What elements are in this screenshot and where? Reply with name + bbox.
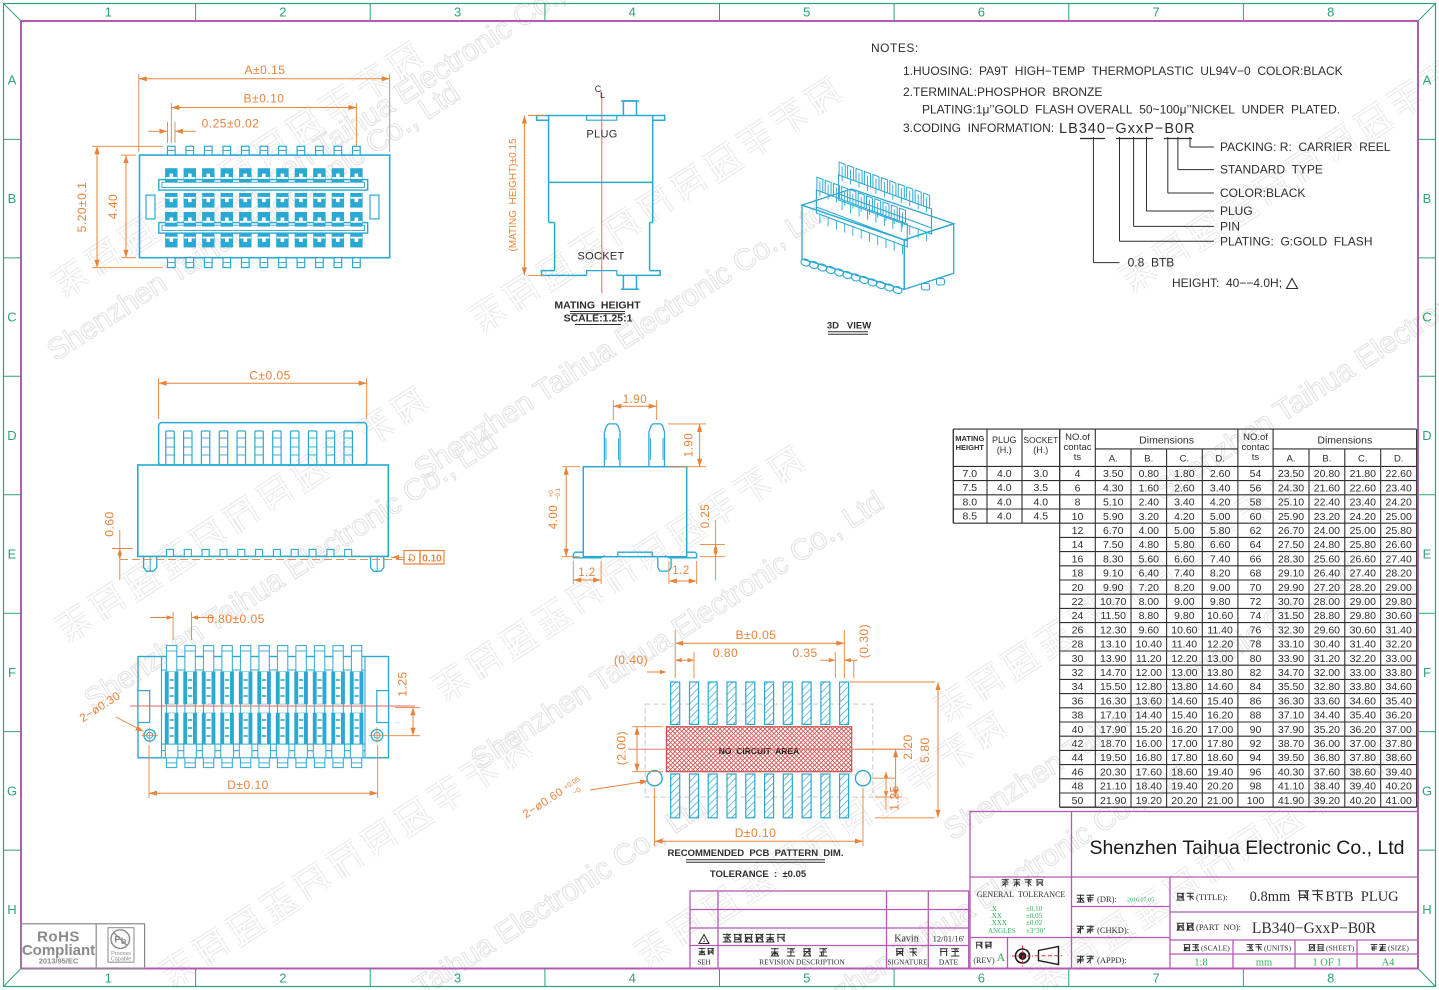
svg-text:26: 26 — [1072, 624, 1084, 636]
svg-text:11.40: 11.40 — [1207, 624, 1233, 636]
svg-text:26.60: 26.60 — [1350, 553, 1376, 565]
svg-text:3.CODING INFORMATION:: 3.CODING INFORMATION: — [903, 121, 1054, 135]
svg-text:NOTES:: NOTES: — [871, 41, 919, 55]
svg-text:4.0: 4.0 — [997, 511, 1012, 523]
svg-text:(DR):: (DR): — [1097, 894, 1117, 904]
svg-text:84: 84 — [1250, 681, 1262, 693]
svg-text:D±0.10: D±0.10 — [227, 778, 269, 792]
svg-text:17.60: 17.60 — [1136, 766, 1162, 778]
svg-text:7.40: 7.40 — [1174, 568, 1195, 580]
svg-text:9.80: 9.80 — [1174, 610, 1195, 622]
svg-text:24.20: 24.20 — [1350, 511, 1376, 523]
svg-text:2.TERMINAL:PHOSPHOR BRONZE: 2.TERMINAL:PHOSPHOR BRONZE — [903, 85, 1102, 99]
svg-text:9.90: 9.90 — [1103, 582, 1124, 594]
svg-text:Shenzhen Taihua Electronic Co.: Shenzhen Taihua Electronic Co., Ltd — [1089, 837, 1404, 859]
svg-text:14.60: 14.60 — [1171, 695, 1197, 707]
svg-text:5.20±0.1: 5.20±0.1 — [75, 182, 89, 233]
svg-text:21.90: 21.90 — [1100, 795, 1126, 807]
svg-text:1: 1 — [702, 938, 705, 944]
svg-text:2013/95/EC: 2013/95/EC — [39, 957, 79, 966]
svg-text:SCALE:1.25:1: SCALE:1.25:1 — [564, 313, 633, 325]
svg-text:25.10: 25.10 — [1278, 497, 1304, 509]
svg-text:4: 4 — [629, 971, 636, 986]
svg-text:80: 80 — [1250, 653, 1262, 665]
svg-text:(CHKD):: (CHKD): — [1097, 925, 1129, 935]
svg-text:8.80: 8.80 — [1139, 610, 1160, 622]
svg-text:D: D — [408, 554, 415, 565]
svg-text:6.60: 6.60 — [1210, 539, 1231, 551]
svg-text:8: 8 — [1327, 5, 1334, 20]
svg-text:9.60: 9.60 — [1139, 624, 1160, 636]
svg-text:F: F — [8, 665, 16, 680]
svg-text:12.20: 12.20 — [1207, 639, 1233, 651]
svg-text:10: 10 — [1072, 511, 1084, 523]
svg-text:3.20: 3.20 — [1139, 511, 1160, 523]
svg-text:32.00: 32.00 — [1314, 667, 1340, 679]
svg-text:1.2: 1.2 — [672, 565, 690, 577]
svg-text:58: 58 — [1250, 497, 1262, 509]
svg-text:1.90: 1.90 — [623, 394, 647, 406]
svg-text:20: 20 — [1072, 582, 1084, 594]
svg-text:27.50: 27.50 — [1278, 539, 1304, 551]
svg-text:8.30: 8.30 — [1103, 553, 1124, 565]
svg-text:37.10: 37.10 — [1278, 710, 1304, 722]
svg-text:1.25: 1.25 — [396, 671, 410, 696]
svg-text:C.: C. — [1358, 454, 1368, 465]
svg-text:32.20: 32.20 — [1350, 653, 1376, 665]
svg-text:RECOMMENDED PCB PATTERN DIM: RECOMMENDED PCB PATTERN DIM. — [668, 848, 844, 859]
svg-text:4.30: 4.30 — [1103, 482, 1124, 494]
svg-text:18: 18 — [1072, 568, 1084, 580]
svg-text:11.20: 11.20 — [1136, 653, 1162, 665]
svg-text:5.60: 5.60 — [1139, 553, 1160, 565]
svg-text:(PART NO):: (PART NO): — [1196, 922, 1241, 932]
svg-text:(SHEET): (SHEET) — [1326, 944, 1355, 953]
svg-text:6.40: 6.40 — [1139, 568, 1160, 580]
svg-text:SIGNATURE: SIGNATURE — [888, 959, 929, 967]
svg-text:16: 16 — [1072, 553, 1084, 565]
svg-text:15.20: 15.20 — [1136, 724, 1162, 736]
svg-text:24.80: 24.80 — [1314, 539, 1340, 551]
svg-text:16.30: 16.30 — [1100, 695, 1126, 707]
svg-text:4: 4 — [629, 5, 636, 20]
svg-text:60: 60 — [1250, 511, 1262, 523]
svg-text:34.60: 34.60 — [1386, 681, 1412, 693]
svg-text:ANGLES: ANGLES — [988, 927, 1016, 935]
svg-text:3.50: 3.50 — [1103, 468, 1124, 480]
svg-text:ts: ts — [1252, 452, 1260, 463]
svg-text:4.0: 4.0 — [997, 482, 1012, 494]
svg-text:27.40: 27.40 — [1386, 553, 1412, 565]
svg-text:REVISION DESCRIPTION: REVISION DESCRIPTION — [759, 958, 845, 967]
svg-text:(APPD):: (APPD): — [1097, 955, 1127, 965]
svg-text:41.00: 41.00 — [1386, 795, 1412, 807]
svg-text:4.80: 4.80 — [1139, 539, 1160, 551]
svg-text:22: 22 — [1072, 596, 1084, 608]
svg-text:13.80: 13.80 — [1171, 681, 1197, 693]
svg-text:34: 34 — [1072, 681, 1084, 693]
svg-text:31.50: 31.50 — [1278, 610, 1304, 622]
svg-text:74: 74 — [1250, 610, 1262, 622]
svg-text:34.70: 34.70 — [1278, 667, 1304, 679]
svg-text:29.00: 29.00 — [1386, 582, 1412, 594]
svg-text:16.80: 16.80 — [1136, 752, 1162, 764]
svg-text:21.00: 21.00 — [1207, 795, 1233, 807]
svg-text:6.70: 6.70 — [1103, 525, 1124, 537]
svg-text:39.40: 39.40 — [1386, 766, 1412, 778]
svg-text:1.80: 1.80 — [1174, 468, 1195, 480]
svg-text:37.00: 37.00 — [1350, 738, 1376, 750]
svg-text:A.: A. — [1287, 454, 1296, 465]
svg-text:33.80: 33.80 — [1350, 681, 1376, 693]
svg-text:6.60: 6.60 — [1174, 553, 1195, 565]
svg-text:0.8 BTB: 0.8 BTB — [1128, 256, 1175, 270]
svg-text:30.70: 30.70 — [1278, 596, 1304, 608]
svg-text:BTB PLUG: BTB PLUG — [1325, 889, 1399, 905]
svg-text:4.20: 4.20 — [1174, 511, 1195, 523]
svg-text:H: H — [7, 902, 16, 917]
svg-text:36.80: 36.80 — [1314, 752, 1340, 764]
svg-text:12.80: 12.80 — [1136, 681, 1162, 693]
svg-text:5: 5 — [803, 971, 810, 986]
svg-text:28.80: 28.80 — [1314, 610, 1340, 622]
svg-text:68: 68 — [1250, 568, 1262, 580]
svg-text:0.25±0.02: 0.25±0.02 — [202, 117, 260, 131]
svg-text:25.00: 25.00 — [1386, 511, 1412, 523]
svg-text:32.80: 32.80 — [1314, 681, 1340, 693]
svg-text:29.60: 29.60 — [1314, 624, 1340, 636]
svg-text:Kavin: Kavin — [894, 934, 918, 945]
svg-text:PLUG: PLUG — [992, 435, 1017, 445]
svg-text:5.80: 5.80 — [918, 737, 932, 762]
svg-text:Dimensions: Dimensions — [1317, 435, 1372, 447]
svg-text:D.: D. — [1215, 454, 1225, 465]
svg-text:A: A — [997, 950, 1006, 964]
svg-text:4.0: 4.0 — [1033, 496, 1048, 508]
svg-text:STANDARD TYPE: STANDARD TYPE — [1220, 163, 1323, 177]
svg-text:82: 82 — [1250, 667, 1262, 679]
svg-text:PLATING:1μ’’GOLD FLASH OVERAL: PLATING:1μ’’GOLD FLASH OVERALL 50~100μ’’… — [922, 103, 1340, 117]
svg-text:10.60: 10.60 — [1207, 610, 1233, 622]
svg-text:(0.30): (0.30) — [857, 624, 871, 658]
svg-text:30.60: 30.60 — [1350, 624, 1376, 636]
svg-text:24.20: 24.20 — [1386, 497, 1412, 509]
svg-text:30.40: 30.40 — [1314, 639, 1340, 651]
svg-text:25.00: 25.00 — [1350, 525, 1376, 537]
svg-text:41.90: 41.90 — [1278, 795, 1304, 807]
svg-text:(0.40): (0.40) — [614, 653, 648, 667]
svg-text:96: 96 — [1250, 766, 1262, 778]
svg-text:D.: D. — [1394, 454, 1404, 465]
svg-text:4.00: 4.00 — [1139, 525, 1160, 537]
svg-text:LB340−GxxP−B0R: LB340−GxxP−B0R — [1059, 121, 1196, 137]
svg-text:7.50: 7.50 — [1103, 539, 1124, 551]
svg-text:25.90: 25.90 — [1278, 511, 1304, 523]
svg-text:5.80: 5.80 — [1174, 539, 1195, 551]
svg-text:2: 2 — [279, 5, 286, 20]
svg-text:34.40: 34.40 — [1314, 710, 1340, 722]
svg-text:17.00: 17.00 — [1207, 724, 1233, 736]
svg-text:28.20: 28.20 — [1350, 582, 1376, 594]
svg-text:35.20: 35.20 — [1314, 724, 1340, 736]
svg-text:1.25: 1.25 — [888, 785, 902, 810]
svg-text:16.20: 16.20 — [1171, 724, 1197, 736]
svg-text:20.20: 20.20 — [1207, 781, 1233, 793]
svg-text:D: D — [7, 428, 16, 443]
svg-text:13.00: 13.00 — [1207, 653, 1233, 665]
svg-text:Capable: Capable — [111, 957, 132, 963]
svg-text:E: E — [1423, 547, 1432, 562]
svg-text:B±0.10: B±0.10 — [244, 92, 285, 106]
svg-text:B: B — [1423, 191, 1432, 206]
svg-text:−0.1: −0.1 — [555, 487, 562, 500]
svg-text:29.10: 29.10 — [1278, 568, 1304, 580]
svg-text:94: 94 — [1250, 752, 1262, 764]
svg-text:22.40: 22.40 — [1314, 497, 1340, 509]
svg-text:0.25: 0.25 — [700, 504, 712, 528]
svg-text:16.00: 16.00 — [1136, 738, 1162, 750]
svg-text:34.60: 34.60 — [1350, 695, 1376, 707]
svg-text:17.80: 17.80 — [1171, 752, 1197, 764]
svg-text:39.40: 39.40 — [1350, 781, 1376, 793]
svg-text:12.30: 12.30 — [1100, 624, 1126, 636]
svg-text:17.00: 17.00 — [1171, 738, 1197, 750]
svg-text:13.80: 13.80 — [1207, 667, 1233, 679]
svg-text:1.2: 1.2 — [578, 567, 596, 579]
svg-text:38.60: 38.60 — [1350, 766, 1376, 778]
svg-text:2.60: 2.60 — [1210, 468, 1231, 480]
svg-text:9.00: 9.00 — [1210, 582, 1231, 594]
svg-text:5: 5 — [803, 5, 810, 20]
svg-text:48: 48 — [1072, 781, 1084, 793]
svg-text:25.60: 25.60 — [1314, 553, 1340, 565]
svg-text:PIN: PIN — [1220, 219, 1240, 233]
svg-text:20.20: 20.20 — [1171, 795, 1197, 807]
svg-text:41.10: 41.10 — [1278, 781, 1304, 793]
svg-text:B: B — [8, 191, 17, 206]
svg-text:66: 66 — [1250, 553, 1262, 565]
svg-text:7.0: 7.0 — [962, 468, 977, 480]
svg-text:(UNITS): (UNITS) — [1264, 944, 1292, 953]
svg-text:(H.): (H.) — [1033, 445, 1048, 455]
svg-text:36.20: 36.20 — [1386, 710, 1412, 722]
svg-text:0.80±0.05: 0.80±0.05 — [207, 612, 265, 626]
svg-text:C: C — [1422, 310, 1431, 325]
svg-text:G: G — [7, 783, 17, 798]
svg-text:PLUG: PLUG — [1220, 204, 1253, 218]
svg-text:6: 6 — [978, 971, 985, 986]
svg-text:88: 88 — [1250, 710, 1262, 722]
svg-text:33.90: 33.90 — [1278, 653, 1304, 665]
svg-text:6: 6 — [978, 5, 985, 20]
svg-text:8: 8 — [1327, 971, 1334, 986]
svg-text:40.20: 40.20 — [1386, 781, 1412, 793]
svg-text:30.60: 30.60 — [1386, 610, 1412, 622]
svg-text:29.80: 29.80 — [1386, 596, 1412, 608]
svg-text:3.40: 3.40 — [1210, 482, 1231, 494]
svg-text:54: 54 — [1250, 468, 1262, 480]
svg-text:26.60: 26.60 — [1386, 539, 1412, 551]
svg-text:B.: B. — [1322, 454, 1331, 465]
svg-text:G: G — [1422, 783, 1432, 798]
svg-text:1: 1 — [105, 5, 112, 20]
svg-text:(MATING HEIGHT)±0.15: (MATING HEIGHT)±0.15 — [508, 138, 519, 252]
svg-text:E: E — [8, 547, 17, 562]
svg-text:13.10: 13.10 — [1100, 639, 1126, 651]
svg-text:B.: B. — [1144, 454, 1153, 465]
svg-text:HEIGHT: HEIGHT — [956, 443, 985, 452]
svg-text:Dimensions: Dimensions — [1139, 435, 1194, 447]
svg-text:HEIGHT: 40−−4.0H;: HEIGHT: 40−−4.0H; — [1172, 276, 1282, 290]
svg-text:(SCALE): (SCALE) — [1201, 944, 1230, 953]
svg-text:28.20: 28.20 — [1386, 568, 1412, 580]
svg-text:A: A — [8, 73, 17, 88]
svg-text:20.80: 20.80 — [1314, 468, 1340, 480]
svg-text:36.30: 36.30 — [1278, 695, 1304, 707]
svg-text:D: D — [1422, 428, 1431, 443]
svg-text:70: 70 — [1250, 582, 1262, 594]
svg-text:7.40: 7.40 — [1210, 553, 1231, 565]
svg-text:13.90: 13.90 — [1100, 653, 1126, 665]
svg-text:C: C — [7, 310, 16, 325]
svg-text:7: 7 — [1152, 5, 1159, 20]
svg-text:23.20: 23.20 — [1314, 511, 1340, 523]
svg-text:A4: A4 — [1382, 958, 1396, 969]
svg-text:D±0.10: D±0.10 — [735, 826, 777, 840]
svg-text:+0: +0 — [548, 490, 555, 498]
svg-text:1.60: 1.60 — [1139, 482, 1160, 494]
svg-text:17.90: 17.90 — [1100, 724, 1126, 736]
svg-text:F: F — [1423, 665, 1431, 680]
svg-text:19.40: 19.40 — [1171, 781, 1197, 793]
svg-text:19.20: 19.20 — [1136, 795, 1162, 807]
svg-text:SOCKET: SOCKET — [1023, 435, 1058, 445]
svg-text:7.5: 7.5 — [962, 482, 977, 494]
svg-text:0.80: 0.80 — [1139, 468, 1160, 480]
svg-text:11.50: 11.50 — [1100, 610, 1126, 622]
svg-text:33.00: 33.00 — [1350, 667, 1376, 679]
svg-text:8.5: 8.5 — [962, 511, 977, 523]
svg-text:1.90: 1.90 — [684, 433, 696, 457]
svg-text:38.40: 38.40 — [1314, 781, 1340, 793]
svg-text:23.40: 23.40 — [1350, 497, 1376, 509]
svg-text:27.40: 27.40 — [1350, 568, 1376, 580]
svg-text:12/01/16': 12/01/16' — [933, 934, 965, 944]
svg-text:C.: C. — [1180, 454, 1190, 465]
svg-text:27.20: 27.20 — [1314, 582, 1340, 594]
svg-text:42: 42 — [1072, 738, 1084, 750]
svg-text:44: 44 — [1072, 752, 1084, 764]
svg-text:33.80: 33.80 — [1386, 667, 1412, 679]
svg-text:14.40: 14.40 — [1136, 710, 1162, 722]
svg-text:36: 36 — [1072, 695, 1084, 707]
svg-text:0.60: 0.60 — [103, 511, 117, 536]
svg-text:0.80: 0.80 — [713, 646, 738, 660]
svg-text:32: 32 — [1072, 667, 1084, 679]
svg-text:0.35: 0.35 — [792, 646, 817, 660]
svg-text:29.90: 29.90 — [1278, 582, 1304, 594]
svg-text:62: 62 — [1250, 525, 1262, 537]
svg-text:3: 3 — [454, 5, 461, 20]
svg-text:35.40: 35.40 — [1386, 695, 1412, 707]
svg-text:A.: A. — [1109, 454, 1118, 465]
svg-text:15.50: 15.50 — [1100, 681, 1126, 693]
svg-text:18.40: 18.40 — [1136, 781, 1162, 793]
svg-text:13.60: 13.60 — [1136, 695, 1162, 707]
svg-text:32.30: 32.30 — [1278, 624, 1304, 636]
svg-text:COLOR:BLACK: COLOR:BLACK — [1220, 186, 1305, 200]
svg-text:24.30: 24.30 — [1278, 482, 1304, 494]
svg-text:86: 86 — [1250, 695, 1262, 707]
svg-text:20.30: 20.30 — [1100, 766, 1126, 778]
svg-text:3.0: 3.0 — [1033, 468, 1048, 480]
svg-text:100: 100 — [1247, 795, 1265, 807]
svg-text:DATE: DATE — [939, 958, 959, 967]
svg-text:12.20: 12.20 — [1171, 653, 1197, 665]
svg-text:3.5: 3.5 — [1033, 482, 1048, 494]
svg-text:35.40: 35.40 — [1350, 710, 1376, 722]
svg-text:33.60: 33.60 — [1314, 695, 1340, 707]
svg-text:37.00: 37.00 — [1386, 724, 1412, 736]
svg-text:21.60: 21.60 — [1314, 482, 1340, 494]
svg-text:18.70: 18.70 — [1100, 738, 1126, 750]
svg-text:mm: mm — [1256, 958, 1272, 969]
svg-text:(2.00): (2.00) — [615, 731, 629, 765]
svg-text:MATING: MATING — [955, 434, 984, 443]
svg-text:37.60: 37.60 — [1314, 766, 1340, 778]
svg-text:8.20: 8.20 — [1210, 568, 1231, 580]
svg-text:L: L — [600, 90, 605, 100]
svg-text:26.40: 26.40 — [1314, 568, 1340, 580]
svg-text:A±0.15: A±0.15 — [245, 63, 286, 77]
svg-text:31.40: 31.40 — [1386, 624, 1412, 636]
svg-text:(TITLE):: (TITLE): — [1196, 892, 1228, 902]
svg-text:15.40: 15.40 — [1171, 710, 1197, 722]
svg-text:38: 38 — [1072, 710, 1084, 722]
svg-text:19.40: 19.40 — [1207, 766, 1233, 778]
svg-text:3.40: 3.40 — [1174, 497, 1195, 509]
svg-text:24.00: 24.00 — [1314, 525, 1340, 537]
svg-text:B±0.05: B±0.05 — [736, 628, 777, 642]
svg-text:4.20: 4.20 — [1210, 497, 1231, 509]
svg-text:PLATING: G:GOLD FLASH: PLATING: G:GOLD FLASH — [1220, 234, 1372, 248]
svg-text:35.50: 35.50 — [1278, 681, 1304, 693]
svg-text:1:8: 1:8 — [1194, 958, 1207, 969]
svg-text:18.60: 18.60 — [1207, 752, 1233, 764]
svg-text:31.40: 31.40 — [1350, 639, 1376, 651]
svg-text:26.70: 26.70 — [1278, 525, 1304, 537]
svg-text:1: 1 — [105, 971, 112, 986]
svg-text:33.10: 33.10 — [1278, 639, 1304, 651]
svg-text:2: 2 — [279, 971, 286, 986]
svg-text:32.20: 32.20 — [1386, 639, 1412, 651]
svg-text:25.80: 25.80 — [1350, 539, 1376, 551]
svg-text:9.10: 9.10 — [1103, 568, 1124, 580]
svg-text:H: H — [1422, 902, 1431, 917]
svg-text:78: 78 — [1250, 639, 1262, 651]
svg-text:4.5: 4.5 — [1033, 511, 1048, 523]
svg-text:21.10: 21.10 — [1100, 781, 1126, 793]
svg-text:4.40: 4.40 — [106, 194, 120, 219]
svg-text:9.00: 9.00 — [1174, 596, 1195, 608]
svg-text:1 OF 1: 1 OF 1 — [1312, 958, 1341, 969]
svg-text:PLUG: PLUG — [586, 129, 617, 141]
svg-text:12.00: 12.00 — [1136, 667, 1162, 679]
svg-text:23.40: 23.40 — [1386, 482, 1412, 494]
svg-text:92: 92 — [1250, 738, 1262, 750]
svg-text:36.20: 36.20 — [1350, 724, 1376, 736]
svg-text:3D VIEW: 3D VIEW — [827, 321, 871, 332]
